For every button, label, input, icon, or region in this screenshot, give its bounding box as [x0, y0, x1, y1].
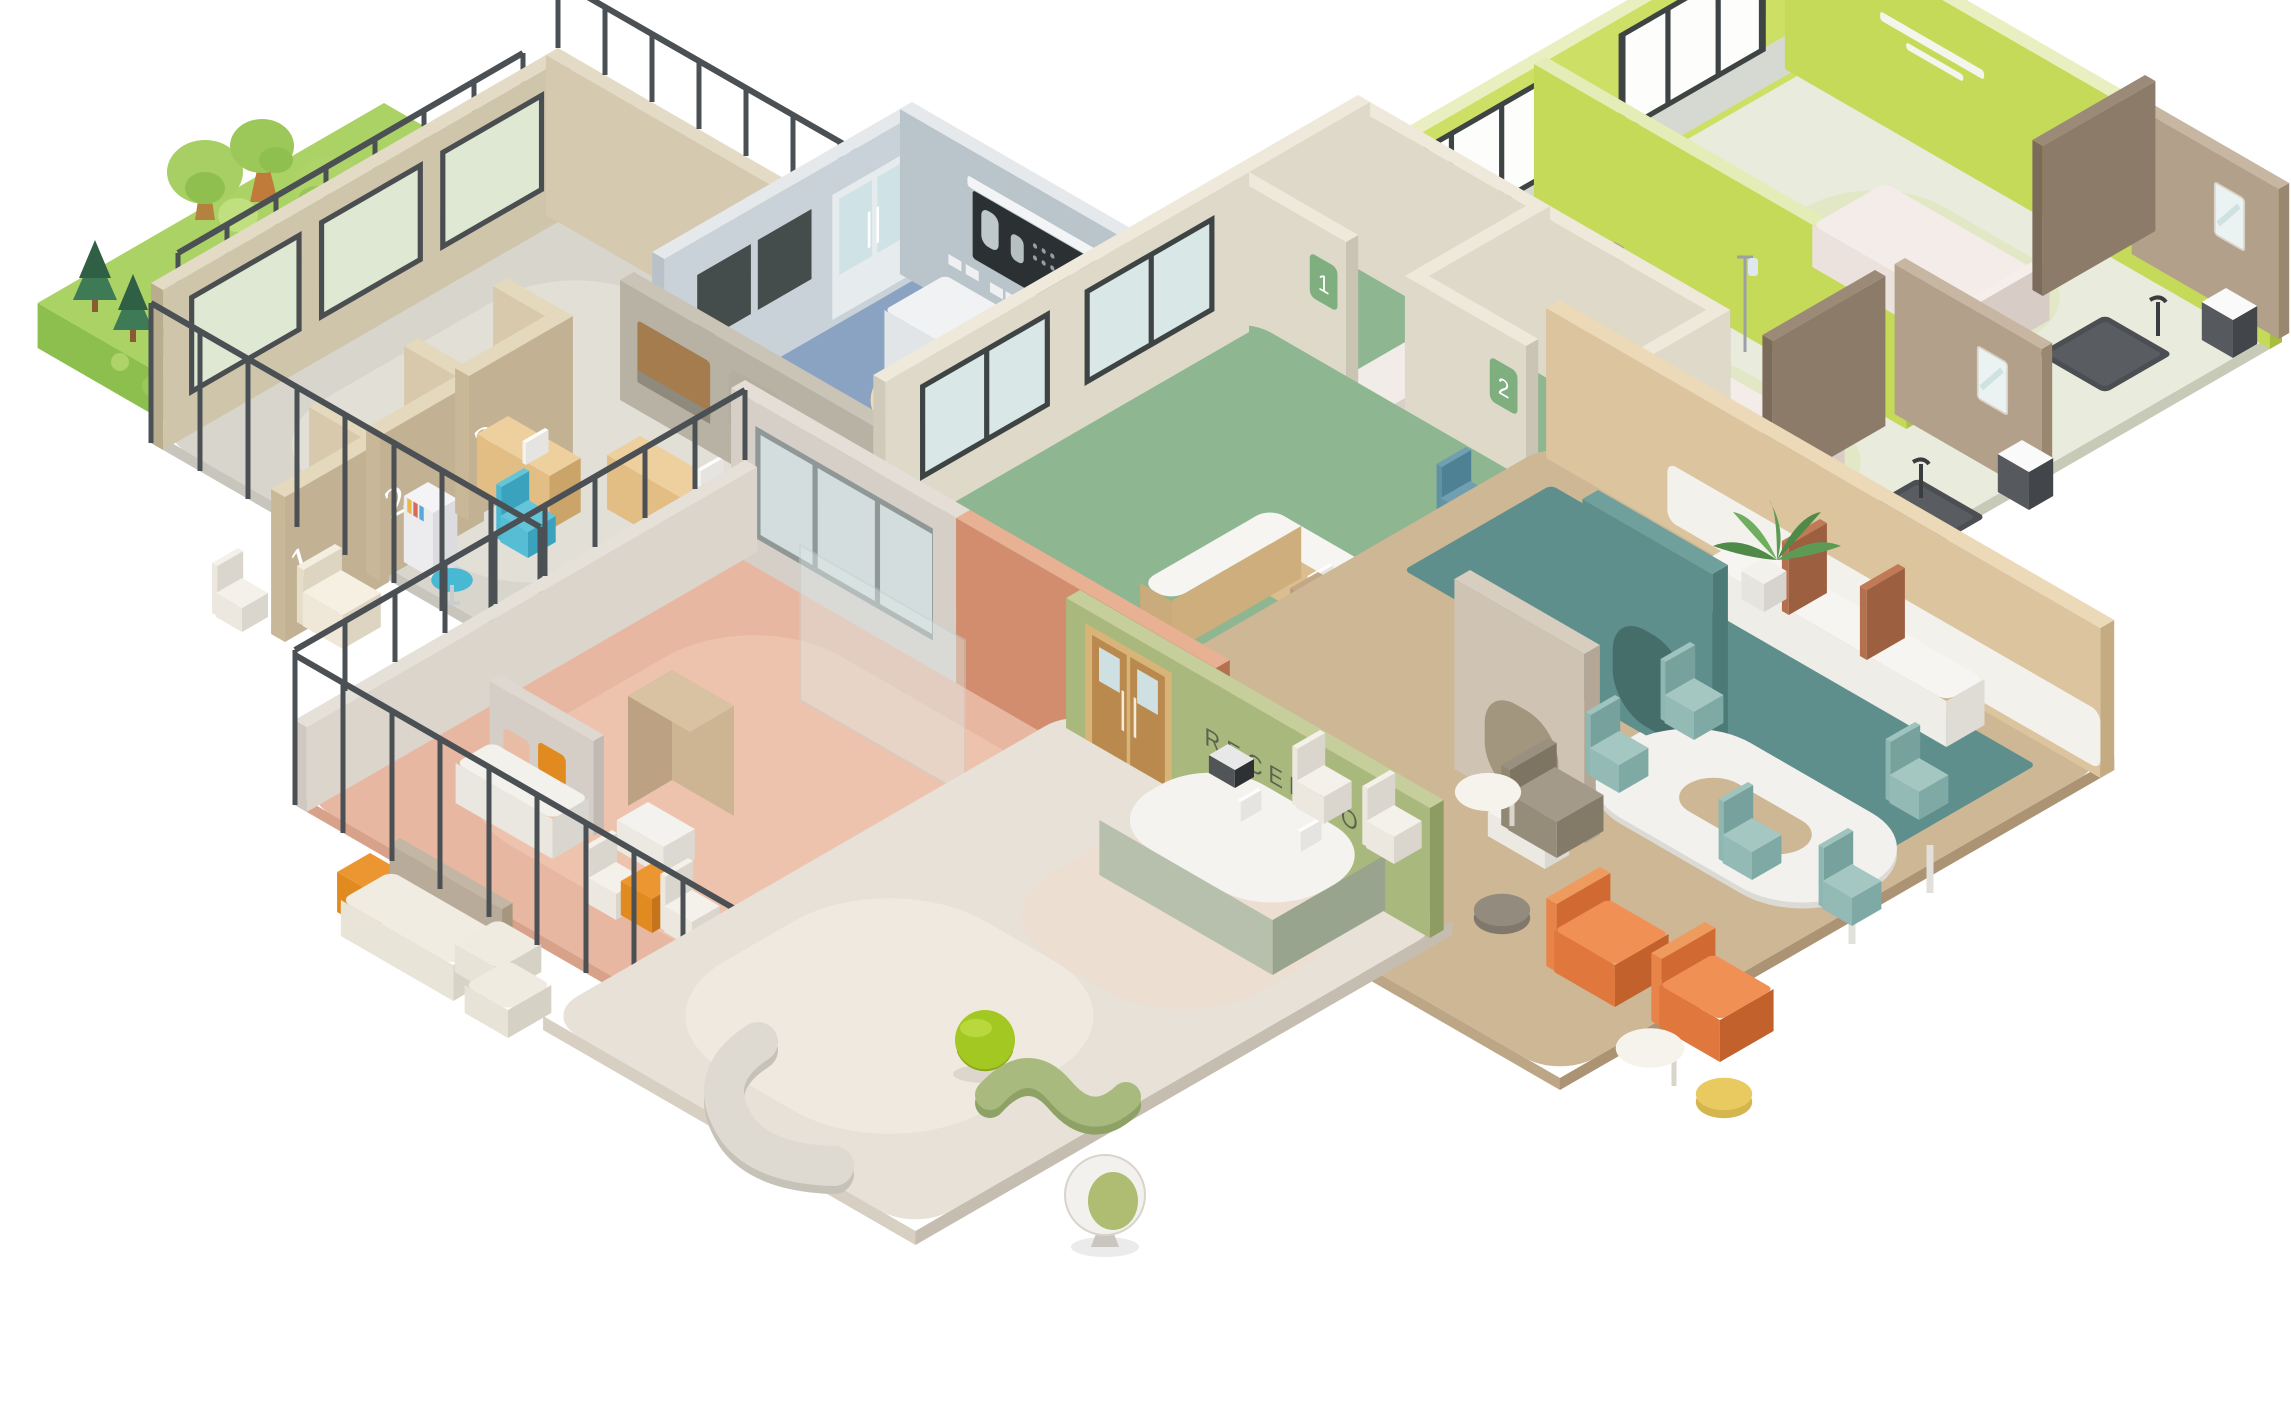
egg-chair: [1065, 1155, 1145, 1257]
yellow-pouf: [1684, 1071, 1764, 1125]
isometric-scene: 1 2 3: [0, 0, 2291, 1422]
hospital-isometric-illustration: 1 2 3: [0, 0, 2291, 1422]
blood-analyzer-cart: [404, 482, 458, 579]
